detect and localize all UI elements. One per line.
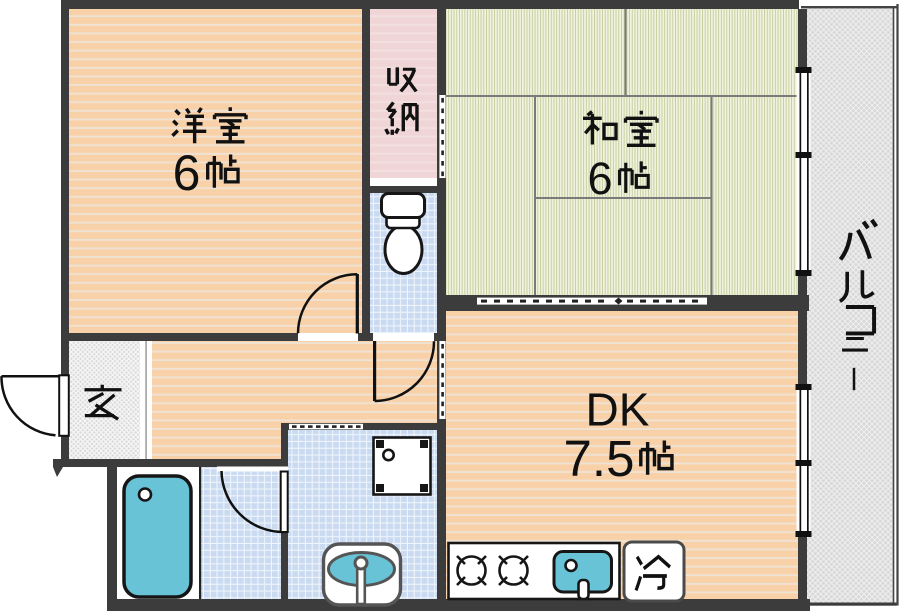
svg-text:7.5: 7.5 — [564, 430, 635, 487]
svg-text:DK: DK — [586, 384, 650, 436]
svg-text:6: 6 — [173, 145, 201, 201]
svg-text:6: 6 — [587, 153, 612, 204]
